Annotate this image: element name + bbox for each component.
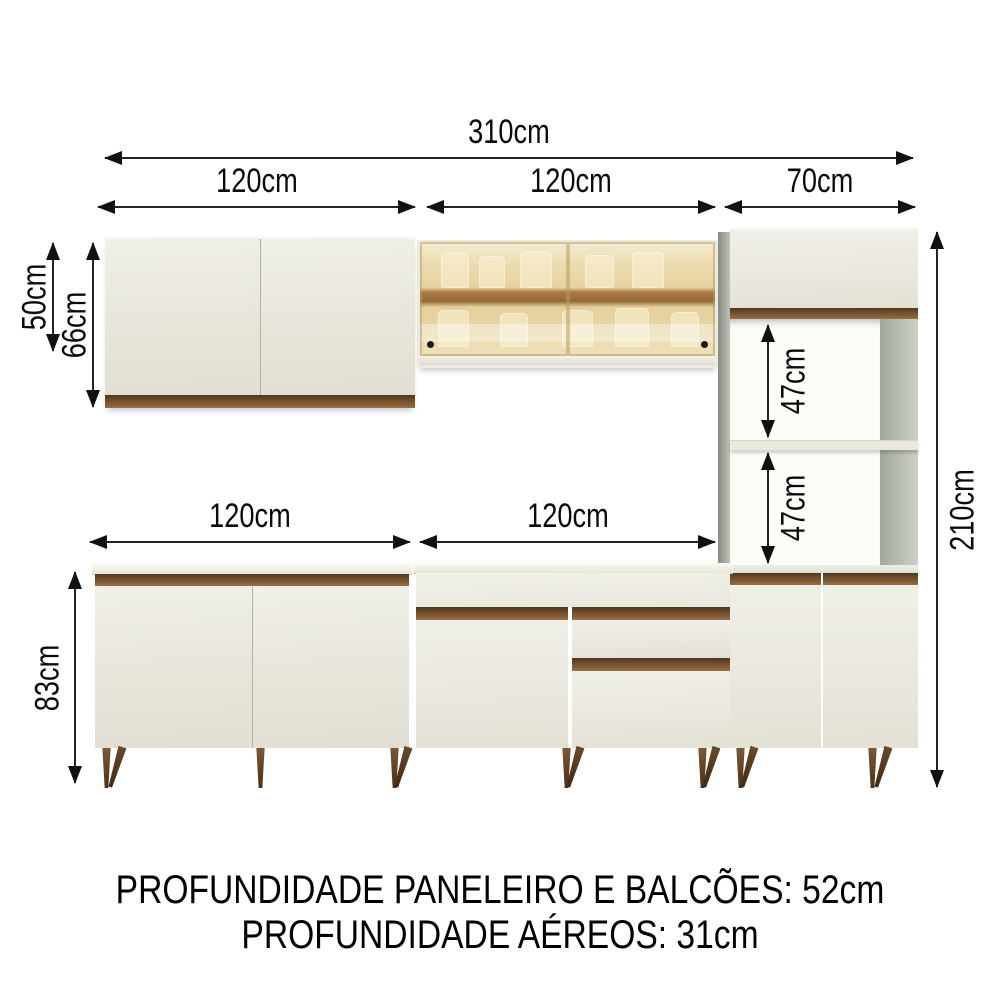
dim-counter-middle-width: 120cm <box>420 541 715 543</box>
tall-cabinet-lower <box>726 573 918 748</box>
dim-aerial-left-width: 120cm <box>98 206 415 208</box>
arrowhead-left <box>724 200 742 214</box>
dim-label-counter-height: 83cm <box>29 644 68 711</box>
arrowhead-left <box>419 535 437 549</box>
glass-door-knob-right <box>701 341 708 348</box>
dim-label-right-width: 70cm <box>787 162 854 201</box>
dim-label-counter-left-width: 120cm <box>209 497 291 536</box>
counter-left-door-1 <box>95 586 252 748</box>
counter-middle-wood-strip-door <box>416 607 568 620</box>
counter-middle-drawer-1 <box>572 620 730 658</box>
aerial-left-doors <box>105 237 415 395</box>
arrowhead-up <box>761 452 775 470</box>
counter-middle-door <box>416 620 568 748</box>
dim-total-height: 210cm <box>936 232 938 787</box>
dim-label-total-height: 210cm <box>944 469 983 551</box>
footer-depth-info: PROFUNDIDADE PANELEIRO E BALCÕES: 52cm P… <box>0 868 1000 958</box>
counter-middle-wood-strip-drawer2 <box>572 658 730 671</box>
dim-total-width: 310cm <box>105 157 913 159</box>
arrowhead-right <box>393 535 411 549</box>
arrowhead-right <box>896 151 914 165</box>
dim-label-niche-lower-height: 47cm <box>775 475 814 542</box>
counter-middle-drawer-2 <box>572 671 730 748</box>
counter-middle-wood-strip-drawer1 <box>572 607 730 620</box>
tall-lower-door-2 <box>823 585 918 748</box>
dim-label-glass-cabinet-height: 50cm <box>16 264 55 331</box>
dim-label-niche-upper-height: 47cm <box>775 348 814 415</box>
tall-lower-wood-strip-1 <box>726 573 821 585</box>
arrowhead-down <box>68 766 82 784</box>
tall-cabinet-wood-strip-upper <box>730 308 918 319</box>
tall-cabinet-niches <box>730 319 918 565</box>
aerial-left-door-1 <box>105 239 260 395</box>
counter-left <box>92 563 412 748</box>
dim-label-aerial-left-width: 120cm <box>216 162 298 201</box>
counter-middle-rail <box>416 573 730 607</box>
glass-front <box>420 242 715 356</box>
dim-niche-upper-height: 47cm <box>767 325 769 437</box>
counter-middle <box>413 563 733 748</box>
dim-aerial-middle-width: 120cm <box>427 206 715 208</box>
dim-aerial-cabinet-height: 66cm <box>92 243 94 407</box>
arrowhead-down <box>761 546 775 564</box>
arrowhead-left <box>426 200 444 214</box>
arrowhead-right <box>398 200 416 214</box>
dim-label-total-width: 310cm <box>468 113 550 152</box>
arrowhead-right <box>698 535 716 549</box>
arrowhead-up <box>930 231 944 249</box>
arrowhead-left <box>97 200 115 214</box>
cabinet-leg <box>254 748 267 788</box>
aerial-cabinet-glass <box>417 240 718 368</box>
arrowhead-right <box>698 200 716 214</box>
dim-right-width: 70cm <box>725 206 915 208</box>
dim-counter-height: 83cm <box>74 572 76 783</box>
aerial-cabinet-left <box>105 237 415 408</box>
dim-glass-cabinet-height: 50cm <box>52 243 54 351</box>
glass-door-right <box>568 242 716 356</box>
dim-counter-left-width: 120cm <box>90 541 410 543</box>
footer-line-2: PROFUNDIDADE AÉREOS: 31cm <box>80 913 920 958</box>
arrowhead-up <box>761 324 775 342</box>
dim-label-aerial-cabinet-height: 66cm <box>56 292 95 359</box>
arrowhead-right <box>898 200 916 214</box>
dim-label-counter-middle-width: 120cm <box>527 497 609 536</box>
arrowhead-up <box>46 242 60 260</box>
aerial-left-wood-base <box>105 395 415 408</box>
tall-cabinet-top-door <box>730 228 918 308</box>
arrowhead-down <box>930 770 944 788</box>
arrowhead-down <box>761 420 775 438</box>
glass-cabinet-bottom-rail <box>420 356 715 365</box>
arrowhead-left <box>104 151 122 165</box>
tall-cabinet-counter-surface <box>726 565 918 573</box>
dim-niche-lower-height: 47cm <box>767 453 769 563</box>
tall-lower-door-1 <box>726 585 821 748</box>
glass-door-left <box>420 242 568 356</box>
arrowhead-down <box>86 390 100 408</box>
counter-left-doors <box>95 586 409 748</box>
arrowhead-up <box>68 571 82 589</box>
arrowhead-up <box>86 242 100 260</box>
niche-shelf <box>730 440 918 450</box>
aerial-left-door-2 <box>261 239 416 395</box>
kitchen-dimension-diagram: 310cm 120cm 120cm 70cm 120cm 120cm 50cm … <box>0 0 1000 1000</box>
footer-line-1: PROFUNDIDADE PANELEIRO E BALCÕES: 52cm <box>80 868 920 913</box>
arrowhead-left <box>89 535 107 549</box>
counter-left-door-2 <box>253 586 410 748</box>
tall-lower-wood-strip-2 <box>823 573 918 585</box>
counter-left-wood-strip <box>95 574 409 586</box>
glass-door-knob-left <box>427 341 434 348</box>
dim-label-aerial-middle-width: 120cm <box>530 162 612 201</box>
